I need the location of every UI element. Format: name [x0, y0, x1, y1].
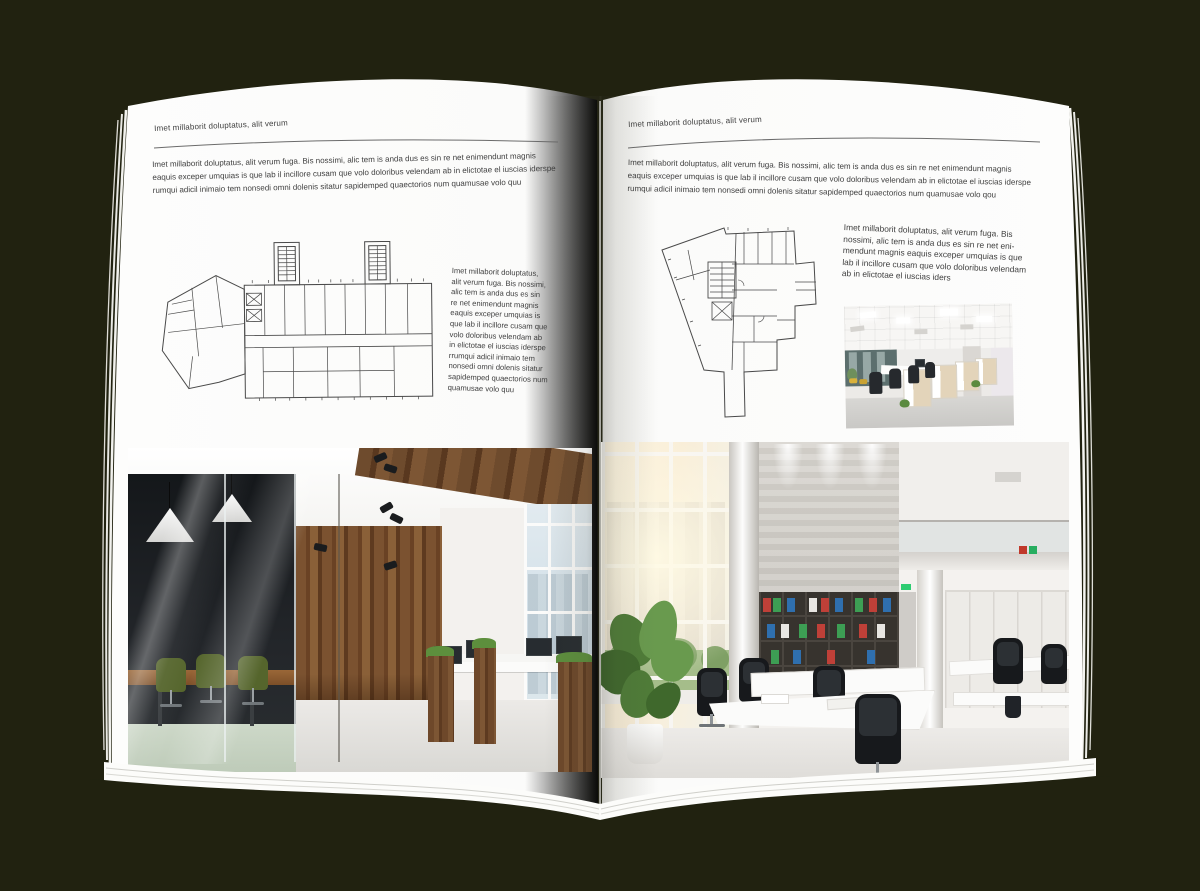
- glass-frame: [224, 474, 226, 762]
- chair-mesh: [997, 642, 1019, 666]
- green-binders: [855, 598, 863, 612]
- black-office-chair: [1041, 644, 1067, 684]
- blue-binders: [793, 650, 801, 664]
- downlight-glow: [857, 444, 887, 490]
- black-office-chair: [925, 362, 935, 378]
- glass-railing: [899, 520, 1069, 556]
- green-binders: [837, 624, 845, 638]
- computer-monitor: [526, 638, 552, 656]
- yellow-sofa: [849, 378, 857, 383]
- blue-binders: [883, 598, 891, 612]
- green-binders: [773, 598, 781, 612]
- book-mockup-scene: Imet millaborit doluptatus, alit verum I…: [0, 0, 1200, 891]
- left-header-rule: [154, 138, 558, 150]
- safety-sign-red: [1019, 546, 1027, 554]
- left-large-photo: [128, 448, 592, 772]
- right-small-photo: [844, 304, 1014, 429]
- plant-pot: [627, 724, 663, 764]
- right-intro-paragraph: Imet millaborit doluptatus, alit verum f…: [627, 156, 1031, 202]
- downlight-glow: [773, 444, 803, 490]
- papers: [761, 694, 789, 704]
- desk-plant: [971, 380, 980, 387]
- safety-sign-green: [1029, 546, 1037, 554]
- white-binders: [781, 624, 789, 638]
- glass-frame: [338, 474, 340, 762]
- red-binders: [763, 598, 771, 612]
- red-binders: [817, 624, 825, 638]
- black-office-chair: [993, 638, 1023, 684]
- ceiling-vent: [960, 324, 973, 329]
- light-panel: [896, 317, 910, 323]
- light-floor: [601, 728, 1069, 778]
- right-page-header: Imet millaborit doluptatus, alit verum: [628, 115, 762, 129]
- red-binders: [827, 650, 835, 664]
- right-header-rule: [628, 134, 1040, 150]
- chair-mesh: [859, 698, 897, 736]
- ceiling-vent: [914, 329, 927, 334]
- right-page: Imet millaborit doluptatus, alit verum I…: [600, 80, 1072, 816]
- waste-bin: [1005, 696, 1021, 718]
- wood-planter: [558, 662, 592, 772]
- black-office-chair: [889, 368, 901, 388]
- wood-planter: [474, 648, 496, 744]
- white-binders: [809, 598, 817, 612]
- desk-plant: [900, 399, 910, 407]
- mezzanine-underside: [899, 552, 1069, 570]
- chair-base: [859, 774, 899, 777]
- downlight-glow: [815, 444, 845, 490]
- right-large-photo: [601, 442, 1069, 778]
- red-binders: [821, 598, 829, 612]
- black-office-chair-front: [855, 694, 901, 764]
- exit-sign: [901, 584, 911, 590]
- right-floor-plan: [648, 220, 838, 425]
- black-office-chair: [908, 365, 919, 383]
- glass-frame: [294, 474, 296, 762]
- left-floor-plan: [157, 237, 439, 410]
- left-page-header: Imet millaborit doluptatus, alit verum: [154, 118, 288, 133]
- glass-wall-reflection: [128, 474, 340, 764]
- red-binders: [859, 624, 867, 638]
- chair-mesh: [1045, 648, 1063, 668]
- chair-base: [699, 724, 725, 727]
- left-side-text: Imet millaborit doluptatus, alit verum f…: [448, 266, 552, 397]
- wood-planter: [428, 656, 454, 742]
- mezzanine: [899, 442, 1069, 570]
- white-binders: [877, 624, 885, 638]
- green-binders: [799, 624, 807, 638]
- blue-binders: [867, 650, 875, 664]
- red-binders: [869, 598, 877, 612]
- yellow-sofa: [859, 379, 867, 384]
- blue-binders: [835, 598, 843, 612]
- left-page: Imet millaborit doluptatus, alit verum I…: [128, 86, 595, 816]
- light-panel: [940, 308, 958, 315]
- green-binders: [771, 650, 779, 664]
- right-side-text: Imet millaborit doluptatus, alit verum f…: [842, 222, 1028, 287]
- left-intro-paragraph: Imet millaborit doluptatus, alit verum f…: [152, 149, 556, 197]
- light-panel: [976, 316, 992, 322]
- chair-mesh: [701, 672, 723, 697]
- blue-binders: [767, 624, 775, 638]
- blue-binders: [787, 598, 795, 612]
- black-office-chair: [869, 372, 882, 394]
- wall-vent: [995, 472, 1021, 482]
- chair-mesh: [817, 670, 841, 696]
